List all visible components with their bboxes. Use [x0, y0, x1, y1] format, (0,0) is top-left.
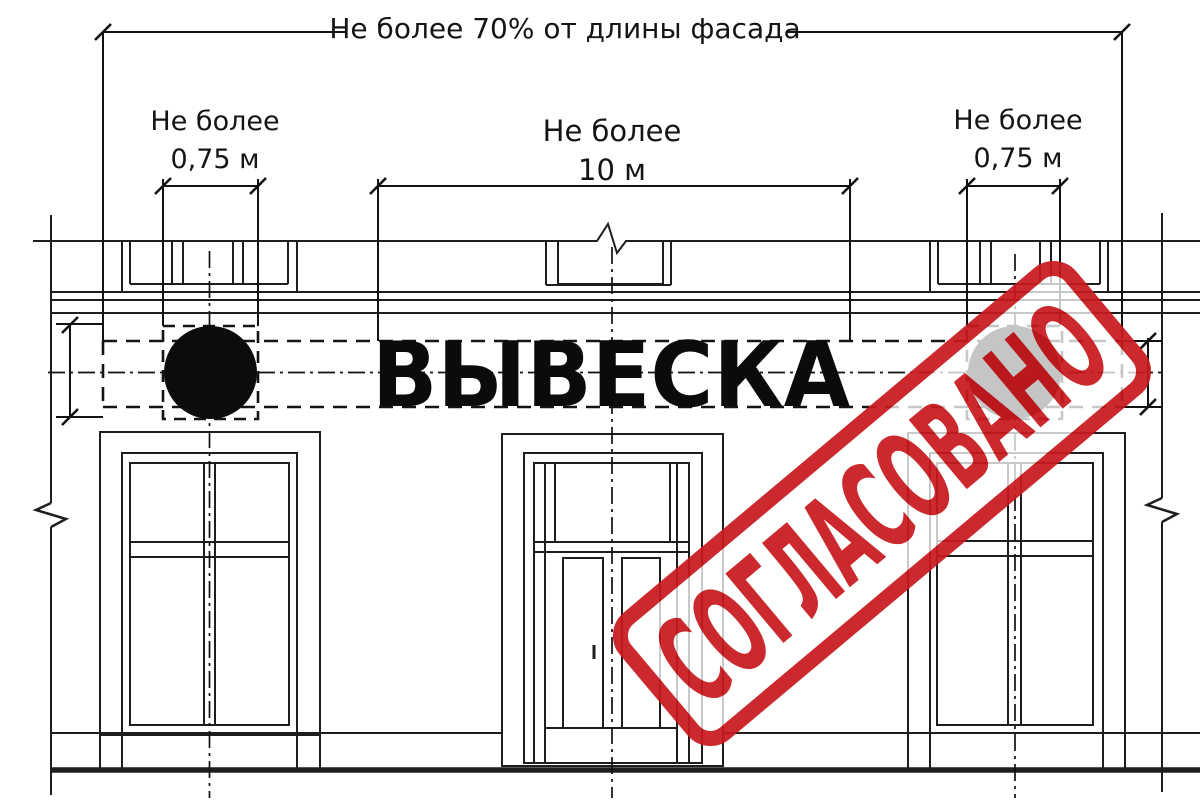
dimension-right-label-line1: Не более — [918, 102, 1118, 140]
dimension-right-label-line2: 0,75 м — [918, 140, 1118, 178]
dimension-left-label-line1: Не более — [115, 103, 315, 141]
dimension-center-label-line2: 10 м — [495, 151, 729, 190]
roofline-with-break — [33, 224, 1200, 253]
facade-right-break-mark — [1147, 498, 1177, 522]
facade-scheme-page: ВЫВЕСКА Не более 70% от длины фасада Не … — [0, 0, 1200, 800]
window-left — [100, 432, 320, 769]
dimension-center-label-line1: Не более — [495, 112, 729, 151]
dimension-top-label: Не более 70% от длины фасада — [265, 12, 865, 46]
dimension-right-label: Не более 0,75 м — [918, 102, 1118, 178]
window-right-plinth-lines — [908, 733, 1125, 769]
dimension-left-label-line2: 0,75 м — [115, 141, 315, 179]
dimension-center-label: Не более 10 м — [495, 112, 729, 190]
dimension-center-line — [378, 179, 850, 341]
attic-window-center — [546, 241, 671, 285]
dimension-left-label: Не более 0,75 м — [115, 103, 315, 179]
logo-circle-left — [164, 326, 257, 419]
facade-left-break-mark — [36, 503, 66, 527]
sign-text: ВЫВЕСКА — [372, 323, 850, 428]
door-panel-left — [563, 558, 603, 728]
dimension-height-left-line — [56, 324, 103, 417]
